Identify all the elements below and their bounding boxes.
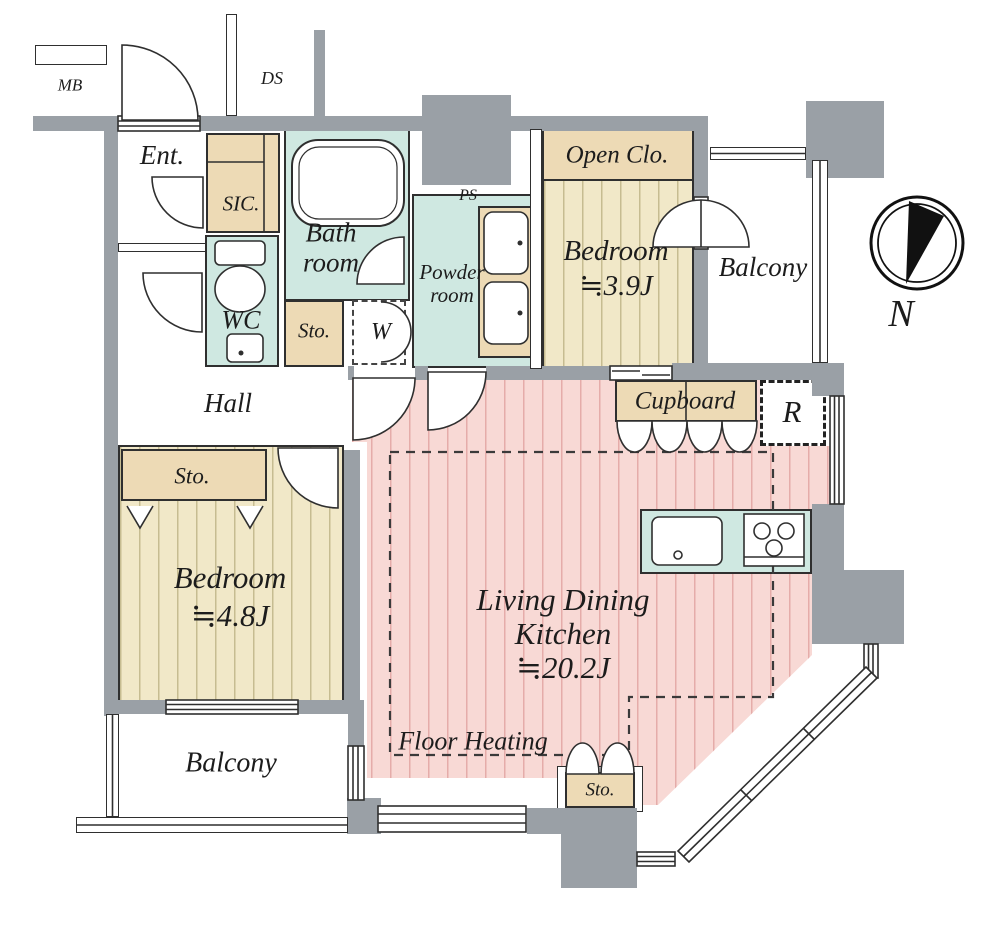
ldk-bottom-window (378, 806, 526, 832)
balcony-right-label: Balcony (719, 253, 807, 283)
bathtub (292, 140, 404, 226)
wc-door (143, 273, 202, 332)
ldk-left-window (348, 746, 364, 800)
powder-label: Powderroom (419, 261, 484, 307)
hall-ldk-door (353, 378, 415, 440)
open-closet-label: Open Clo. (566, 141, 669, 169)
storage-ldk-label: Sto. (585, 781, 614, 802)
bedroom1-sliding-door (610, 366, 672, 380)
refrigerator-label: R (783, 395, 802, 429)
wc-label: WC (222, 307, 261, 336)
floor-heating-label: Floor Heating (398, 728, 548, 757)
storage-hall-label: Sto. (174, 463, 209, 488)
compass-north-icon (871, 197, 963, 289)
bedroom2-label: Bedroom (174, 561, 287, 595)
ldk-right-window (830, 396, 844, 504)
storage-bath-label: Sto. (298, 319, 330, 342)
cupboard-folding-doors (617, 421, 757, 452)
bathroom-door (357, 237, 404, 284)
bedroom1-area: ≒3.9J (579, 271, 652, 303)
toilet (215, 241, 265, 312)
sic-door (152, 177, 203, 228)
entrance-door (122, 45, 198, 120)
mb-label: MB (58, 77, 83, 96)
ps-label: PS (459, 187, 477, 205)
powder-sinks (484, 212, 528, 344)
kitchen-sink (652, 517, 722, 565)
storage-ldk-doors (566, 743, 634, 774)
stove (744, 514, 804, 566)
sic-label: SIC. (223, 192, 260, 215)
bedroom2-window (166, 700, 298, 714)
wc-sink (227, 334, 263, 362)
bedroom2-area: ≒4.8J (191, 599, 269, 633)
bedroom1-label: Bedroom (563, 236, 668, 268)
ldk-area: ≒20.2J (516, 651, 610, 685)
hall-bedroom2-door (278, 448, 338, 508)
storage-hall-door-marks (127, 506, 263, 528)
ldk-label-line1: Living Dining (476, 583, 649, 617)
floorplan-annotations (0, 0, 1000, 925)
cupboard-label: Cupboard (635, 387, 735, 415)
ds-label: DS (261, 69, 283, 89)
washer-label: W (371, 319, 391, 345)
bottom-small-window (637, 852, 675, 866)
ldk-label-line2: Kitchen (515, 617, 611, 651)
bathroom-label: Bathroom (303, 218, 359, 277)
entrance-label: Ent. (140, 141, 184, 171)
balcony-bottom-label: Balcony (185, 749, 277, 780)
powder-ldk-door (428, 372, 486, 430)
floor-plan: MB DS Ent. SIC. Bathroom WC Sto. W Powde… (0, 0, 1000, 925)
hall-label: Hall (204, 389, 252, 419)
compass-n-label: N (888, 294, 913, 336)
